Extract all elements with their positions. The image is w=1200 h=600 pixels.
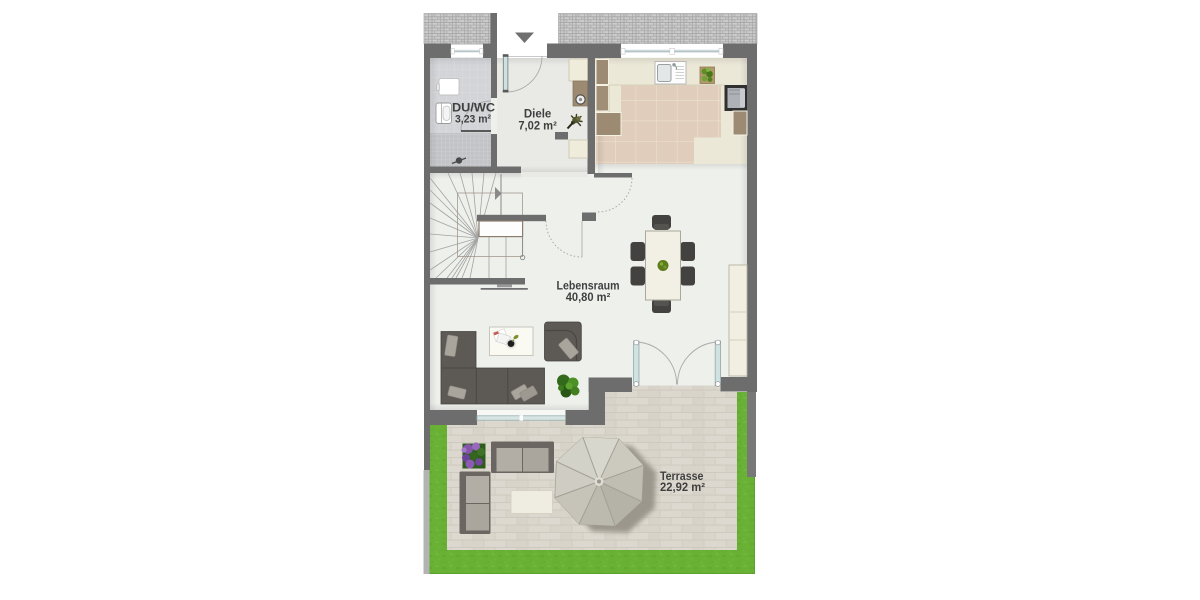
svg-text:DU/WC: DU/WC <box>452 101 495 115</box>
svg-text:7,02 m²: 7,02 m² <box>518 121 557 133</box>
svg-text:Diele: Diele <box>524 108 552 120</box>
svg-text:Terrasse: Terrasse <box>660 471 704 483</box>
svg-text:Lebensraum: Lebensraum <box>557 279 620 293</box>
svg-text:3,23 m²: 3,23 m² <box>455 114 491 126</box>
svg-text:40,80 m²: 40,80 m² <box>566 292 611 304</box>
svg-text:22,92 m²: 22,92 m² <box>660 482 705 494</box>
